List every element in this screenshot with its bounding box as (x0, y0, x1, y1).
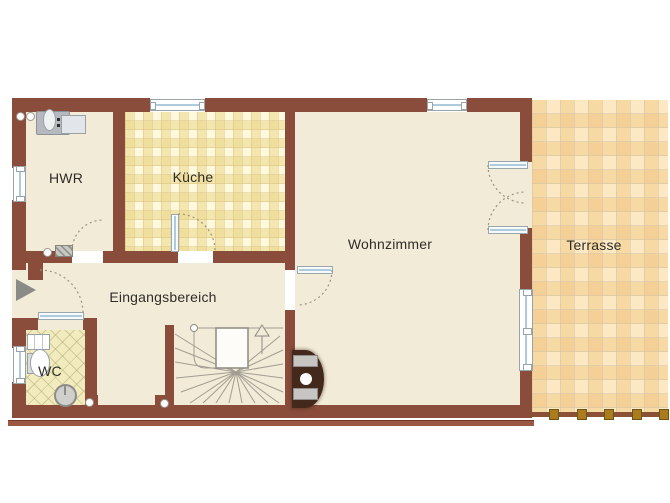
terrace-fence-post (604, 409, 614, 420)
room-label-wohnzimmer: Wohnzimmer (348, 236, 432, 252)
entrance-door-sill (38, 312, 84, 320)
wc-sink (27, 334, 50, 350)
window-wohnzimmer-top (427, 99, 467, 111)
window-glass (153, 104, 202, 106)
wall-bottom-trim (8, 420, 534, 426)
wall-right-b (520, 228, 532, 290)
room-label-kueche: Küche (173, 169, 214, 185)
wohnzimmer-door-leaf (297, 266, 333, 274)
window-hwr-left (13, 166, 26, 202)
wall-kueche-bottom-right (213, 251, 295, 263)
french-door-leaf-bottom (488, 226, 528, 234)
wall-wc-top-left (26, 318, 38, 330)
wall-entry-stub (28, 263, 43, 280)
wall-left-b (12, 200, 26, 270)
window-glass (430, 104, 464, 106)
kueche-door-leaf (171, 214, 179, 252)
terrace-fence-post (632, 409, 642, 420)
fireplace-vent (293, 355, 318, 367)
wall-stair-left (165, 325, 174, 405)
wall-left-c (12, 318, 26, 348)
wall-top-b (205, 98, 427, 112)
terrace-fence-post (577, 409, 587, 420)
french-door-leaf-top (488, 161, 528, 169)
hwr-wall-dot (26, 112, 35, 121)
wall-wc-right (85, 318, 97, 405)
wall-top-a (12, 98, 150, 112)
hwr-washer (61, 115, 86, 134)
window-kueche-top (150, 99, 205, 111)
wall-top-c (467, 98, 532, 112)
wall-end-dot (160, 399, 169, 408)
wall-left-d (12, 382, 26, 405)
hwr-sink-basin (43, 109, 56, 131)
hwr-detail-dot (57, 124, 60, 127)
floor-terrasse-tiles (532, 100, 668, 412)
wall-end-dot (43, 248, 52, 257)
wall-end-dot (85, 398, 94, 407)
entrance-arrow-icon (16, 279, 36, 301)
room-label-eingangsbereich: Eingangsbereich (109, 289, 216, 305)
floor-french-door-gap (520, 162, 532, 228)
wall-divider-hwr-kueche (113, 112, 125, 251)
room-label-wc: WC (38, 363, 62, 379)
floor-plan: HWR Küche Wohnzimmer Eingangsbereich WC … (0, 0, 670, 503)
window-glass (19, 169, 21, 199)
window-wohnzimmer-right (519, 289, 533, 371)
room-label-terrasse: Terrasse (566, 237, 621, 253)
fireplace-vent (293, 388, 318, 400)
wc-fixture-mark (64, 386, 66, 395)
window-wc-left (13, 346, 26, 384)
wall-right-c (520, 370, 532, 405)
wall-divider-kueche-wohnzimmer (285, 112, 295, 270)
terrace-fence-post (659, 409, 669, 420)
terrace-fence-post (549, 409, 559, 420)
floor-stairwell (174, 325, 283, 405)
hwr-utility-box (55, 245, 73, 257)
room-label-hwr: HWR (49, 170, 83, 186)
wall-right-a (520, 112, 532, 162)
hwr-wall-dot (16, 112, 25, 121)
floor-wohnzimmer (295, 112, 520, 405)
wall-kueche-bottom-left (103, 251, 178, 263)
fireplace-flue-dot (300, 373, 312, 385)
window-glass (19, 349, 21, 381)
hwr-detail-dot (57, 118, 60, 121)
